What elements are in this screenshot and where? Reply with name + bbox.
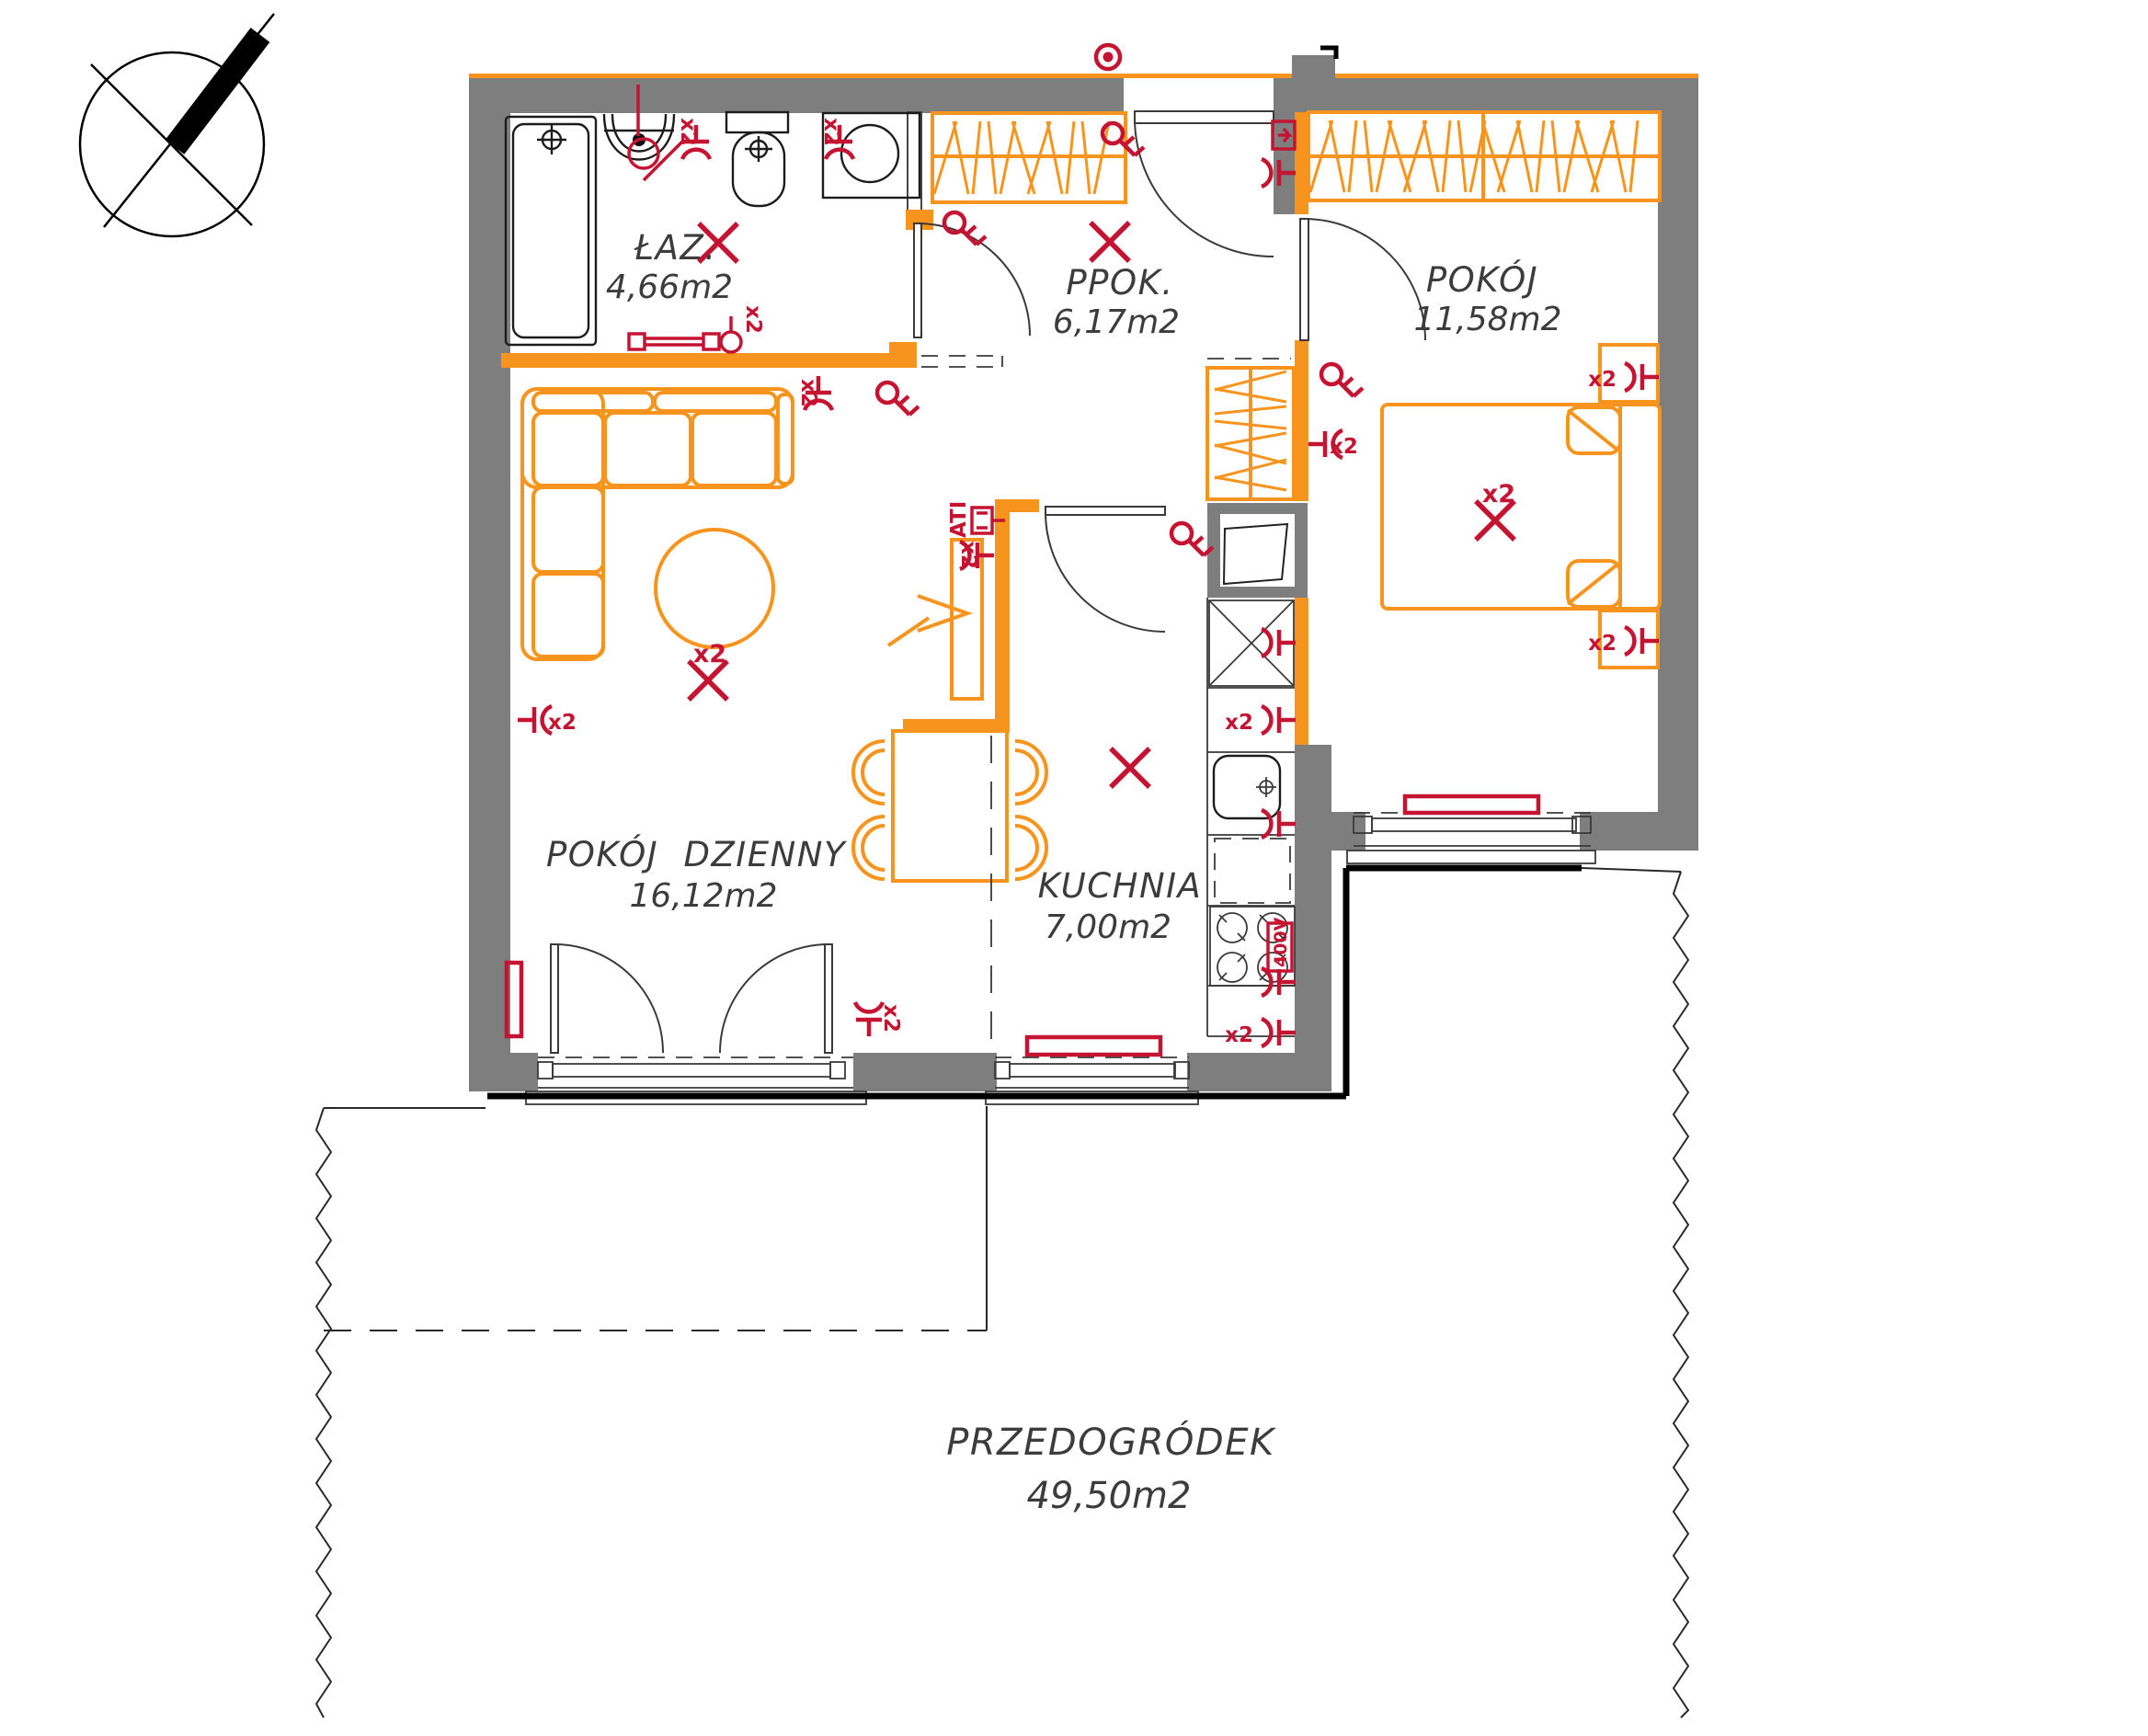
- power-socket-icon: [518, 706, 552, 734]
- double-bed: [1382, 405, 1660, 609]
- kitchen-sink: [1214, 756, 1280, 818]
- x2-label: x2: [1330, 435, 1358, 459]
- x2-label: x2: [548, 711, 577, 735]
- x2-label: x2: [676, 118, 700, 146]
- room-area-bathroom: 4,66m2: [606, 268, 733, 306]
- kitchen-door: [1045, 507, 1165, 632]
- ceiling-light-icon: [1091, 223, 1129, 261]
- vent-point-icon: [721, 332, 741, 352]
- stove-power-outlet: 400V: [1262, 917, 1296, 996]
- room-label-kitchen: KUCHNIA: [1038, 866, 1203, 906]
- bathtub: [506, 117, 596, 345]
- ati-label: ATI: [947, 501, 971, 538]
- x2-label: x2: [1588, 632, 1617, 656]
- power-socket-icon: [1262, 706, 1296, 734]
- ventilation-shaft: [1207, 503, 1308, 598]
- radiator: [1405, 796, 1538, 813]
- bedroom-wardrobe: [1308, 112, 1660, 200]
- site-boundaries: [316, 736, 1688, 1718]
- x2-label: x2: [693, 640, 726, 668]
- room-label-front-garden: PRZEDOGRÓDEK: [946, 1420, 1276, 1464]
- floor-plan-drawing: x2 x2 x2 x2 x2 x2 x2 x2 ATI: [0, 0, 2148, 1736]
- x2-label: x2: [1482, 480, 1515, 508]
- room-area-front-garden: 49,50m2: [1027, 1475, 1192, 1517]
- garden-boundary-zigzag: [316, 1108, 331, 1718]
- room-label-living-room: POKÓJ DZIENNY: [546, 834, 847, 874]
- north-arrow-compass: [80, 14, 274, 236]
- x2-label: x2: [879, 1004, 903, 1033]
- x2-label: x2: [1225, 1023, 1253, 1047]
- room-labels: ŁAZ. 4,66m2 PPOK. 6,17m2 POKÓJ 11,58m2 P…: [546, 228, 1562, 1517]
- light-switch-icon: [1321, 364, 1363, 396]
- radiator: [1027, 1037, 1160, 1055]
- toilet: [726, 112, 788, 206]
- power-socket-icon: [855, 1002, 883, 1036]
- hall-wardrobe: [1207, 368, 1294, 499]
- dining-table-set: [853, 731, 1046, 881]
- kitchen-partition-wall: [995, 501, 1010, 733]
- floor-plan-page: x2 x2 x2 x2 x2 x2 x2 x2 ATI: [0, 0, 2148, 1736]
- room-label-bedroom: POKÓJ: [1426, 259, 1538, 300]
- power-socket-icon: [1625, 363, 1659, 391]
- round-rug: [656, 530, 773, 647]
- insulation-line-top: [469, 74, 1698, 78]
- bathroom-fixtures: [506, 85, 920, 352]
- bedroom-door: [1300, 219, 1425, 340]
- corner-sofa: [522, 389, 793, 659]
- balcony-door-window: [526, 944, 866, 1104]
- power-socket-icon: [1262, 629, 1296, 657]
- x2-label: x2: [741, 305, 765, 334]
- x2-label: x2: [1588, 368, 1617, 392]
- bedroom-window: [1347, 796, 1595, 863]
- chimney-notch: [1292, 55, 1335, 80]
- living-room-furniture: [522, 389, 1046, 881]
- bathroom-south-wall: [501, 353, 889, 368]
- room-area-kitchen: 7,00m2: [1045, 908, 1171, 946]
- light-switch-icon: [877, 383, 919, 415]
- x2-label: x2: [1225, 711, 1253, 735]
- light-switch-icon: [1171, 523, 1213, 555]
- power-socket-icon: [1262, 810, 1296, 838]
- room-label-hallway: PPOK.: [1066, 263, 1173, 303]
- x2-label: x2: [956, 541, 980, 569]
- 400v-label: 400V: [1271, 917, 1291, 967]
- garden-boundary-zigzag: [1674, 872, 1688, 1718]
- power-socket-icon: [1625, 627, 1659, 655]
- x2-label: x2: [819, 118, 843, 146]
- room-area-bedroom: 11,58m2: [1413, 301, 1561, 338]
- x2-label: x2: [796, 379, 820, 407]
- room-label-bathroom: ŁAZ.: [634, 228, 716, 268]
- towel-radiator: [629, 316, 741, 352]
- room-area-hallway: 6,17m2: [1053, 303, 1180, 341]
- dishwasher: [1215, 839, 1290, 903]
- entrance-wardrobe: [932, 113, 1125, 202]
- ceiling-light-icon: [1111, 748, 1149, 787]
- power-socket-icon: [1262, 1019, 1296, 1046]
- room-area-living-room: 16,12m2: [629, 877, 777, 915]
